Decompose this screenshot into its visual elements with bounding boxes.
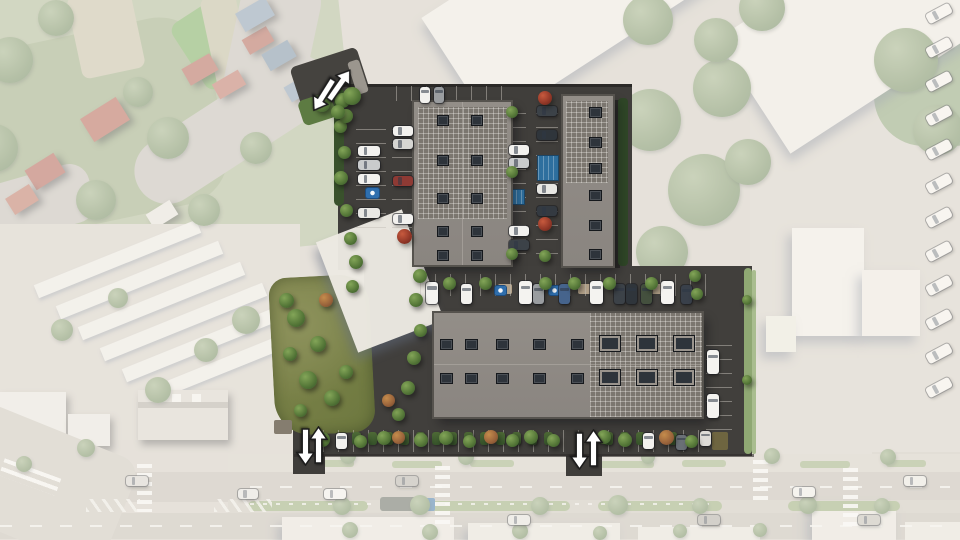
roof-skylight [438, 194, 448, 203]
boundary-edge-south [294, 454, 754, 457]
bike-shelter [538, 156, 558, 180]
tree [409, 293, 423, 307]
tree [339, 365, 353, 379]
car [707, 350, 719, 374]
tree [524, 430, 538, 444]
tree [506, 248, 518, 260]
tree [547, 434, 560, 447]
tree [299, 371, 317, 389]
tree [538, 91, 552, 105]
tree [659, 430, 674, 445]
tree [354, 435, 367, 448]
roof-skylight [602, 372, 618, 383]
roof-skylight [590, 164, 601, 173]
direction-arrow-icon [584, 429, 603, 467]
tree [334, 171, 348, 185]
tree [443, 277, 456, 290]
tree [407, 351, 421, 365]
tree [414, 324, 427, 337]
site-plan-canvas [0, 0, 960, 540]
tree [506, 434, 519, 447]
car [461, 284, 472, 304]
tree [618, 433, 632, 447]
car [420, 87, 430, 103]
car [358, 160, 380, 170]
car [661, 281, 674, 304]
accessible-parking-sign [495, 286, 506, 295]
car [590, 281, 603, 304]
tree [382, 394, 395, 407]
tree [331, 105, 345, 119]
tree [340, 204, 353, 217]
roof-skylight [590, 108, 601, 117]
roof-skylight [472, 194, 482, 203]
accessible-parking-sign [366, 188, 379, 198]
tree [685, 435, 698, 448]
tree [645, 277, 658, 290]
tree [539, 250, 551, 262]
tree [439, 431, 453, 445]
car [393, 214, 413, 224]
car [643, 433, 654, 449]
direction-arrow-icon [309, 426, 328, 464]
car [537, 184, 557, 194]
tree [287, 309, 305, 327]
car [626, 284, 637, 304]
car [358, 146, 380, 156]
car [336, 433, 347, 449]
car [358, 208, 380, 218]
tree [319, 293, 333, 307]
roof-skylight [590, 138, 601, 147]
roof-seam [462, 102, 463, 265]
tree [479, 277, 492, 290]
tree [338, 146, 351, 159]
roof-skylight [534, 340, 545, 349]
entrance-south-out-arrow [584, 429, 603, 467]
stall-lines [396, 86, 514, 101]
solar-panel-array [566, 101, 608, 183]
roof-skylight [572, 374, 583, 383]
tree [484, 430, 498, 444]
car [358, 174, 380, 184]
car [700, 431, 711, 446]
car [537, 206, 557, 216]
tree [603, 277, 616, 290]
tree [377, 431, 391, 445]
tree [346, 280, 359, 293]
roof-skylight [676, 372, 692, 383]
roof-skylight [472, 156, 482, 165]
roof-skylight [497, 340, 508, 349]
roof-skylight [590, 191, 601, 200]
building-northwest [414, 102, 511, 265]
entrance-southwest-out-arrow [309, 426, 328, 464]
roof-skylight [472, 251, 482, 260]
tree [568, 277, 581, 290]
tree [689, 270, 701, 282]
roof-skylight [438, 227, 448, 236]
hedge-east-upper [618, 98, 628, 266]
car [537, 106, 557, 116]
car [393, 176, 413, 186]
roof-skylight [497, 374, 508, 383]
tree [279, 293, 294, 308]
tree [283, 347, 297, 361]
roof-skylight [472, 227, 482, 236]
roof-skylight [590, 250, 601, 259]
car [509, 145, 529, 155]
tree [344, 232, 357, 245]
site-plan-layer [0, 0, 960, 540]
tree [392, 408, 405, 421]
car [519, 281, 532, 304]
roof-skylight [438, 251, 448, 260]
car [537, 130, 557, 140]
tree [691, 288, 703, 300]
roof-skylight [438, 116, 448, 125]
tree [414, 433, 428, 447]
tree [401, 381, 415, 395]
roof-seam [434, 364, 702, 365]
hedge-east-lower-outer [752, 270, 756, 454]
car [426, 282, 438, 304]
bin-store [712, 432, 728, 450]
tree [392, 431, 405, 444]
roof-skylight [438, 156, 448, 165]
car [393, 139, 413, 149]
roof-skylight [534, 374, 545, 383]
roof-skylight [676, 338, 692, 349]
tree [742, 375, 752, 385]
tree [324, 390, 340, 406]
roof-skylight [572, 340, 583, 349]
tree [310, 336, 326, 352]
roof-skylight [466, 340, 477, 349]
roof-skylight [441, 374, 452, 383]
car [509, 226, 529, 236]
roof-skylight [441, 340, 452, 349]
tree [397, 229, 412, 244]
tree [506, 106, 518, 118]
tree [539, 277, 552, 290]
car [614, 284, 625, 304]
shrub [368, 432, 377, 445]
car [434, 87, 444, 103]
roof-skylight [466, 374, 477, 383]
car [393, 126, 413, 136]
building-northeast [563, 96, 613, 266]
tree [538, 217, 552, 231]
roof-skylight [602, 338, 618, 349]
building-south [434, 313, 702, 417]
tree [742, 295, 752, 305]
solar-panel-array [590, 313, 702, 417]
concrete-pad [274, 420, 292, 434]
tree [463, 435, 476, 448]
roof-skylight [590, 221, 601, 230]
tree [413, 269, 427, 283]
roof-skylight [639, 338, 655, 349]
tree [294, 404, 307, 417]
tree [349, 255, 363, 269]
roof-skylight [472, 116, 482, 125]
tree [506, 166, 518, 178]
car [707, 394, 719, 418]
roof-skylight [639, 372, 655, 383]
stall-lines [392, 122, 416, 228]
